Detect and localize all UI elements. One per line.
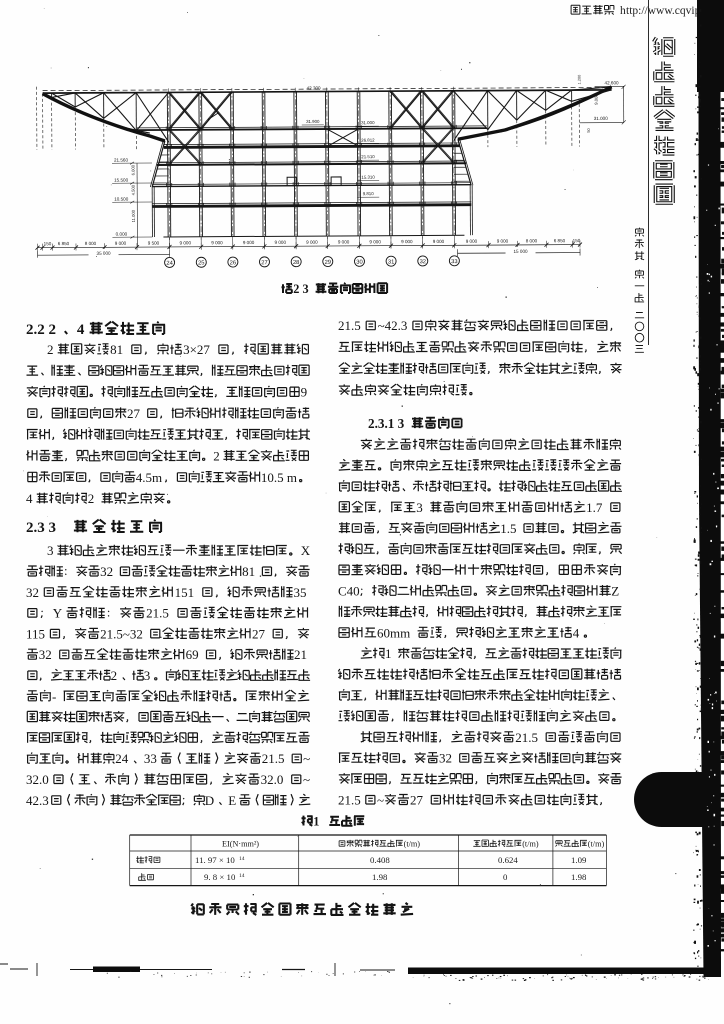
svg-text:1: 1 [385,646,392,661]
svg-text:(t/m): (t/m) [588,840,605,849]
svg-text:11.000: 11.000 [131,209,136,222]
svg-text:E: E [228,793,236,808]
svg-text:6 850: 6 850 [554,238,566,243]
svg-text:2: 2 [213,449,220,464]
svg-text:50: 50 [587,128,591,132]
svg-text:21.5: 21.5 [146,606,169,621]
svg-text:27: 27 [410,793,424,808]
svg-text:27: 27 [252,626,266,641]
svg-text:26: 26 [230,260,236,266]
svg-text:4.500: 4.500 [131,184,136,195]
svg-text:31.900: 31.900 [306,119,320,124]
svg-text:2.3.1 3: 2.3.1 3 [368,416,405,431]
svg-text:-: - [52,689,56,704]
svg-text:14: 14 [239,873,245,879]
svg-text:29: 29 [325,260,331,266]
svg-text:15 000: 15 000 [513,249,528,254]
svg-text:24: 24 [166,261,173,267]
svg-text:21.5: 21.5 [515,730,538,745]
svg-text:9 000: 9 000 [369,239,381,244]
svg-text:1.5: 1.5 [500,521,516,536]
svg-text:14: 14 [239,856,245,862]
svg-text:24: 24 [115,751,129,766]
svg-text:1.09: 1.09 [571,855,587,865]
svg-text:3: 3 [47,543,54,558]
svg-text:4: 4 [573,625,580,640]
svg-text:42.600: 42.600 [605,80,620,85]
svg-text:9.000: 9.000 [594,94,599,105]
svg-text:4.5m: 4.5m [136,470,162,485]
svg-text:~42.3: ~42.3 [378,318,408,333]
svg-text:25: 25 [198,261,204,267]
svg-text:9 000: 9 000 [401,239,413,244]
svg-text:33: 33 [451,259,457,265]
svg-text:C40: C40 [338,584,360,599]
svg-text:9 000: 9 000 [466,239,478,244]
svg-text:32: 32 [39,647,52,662]
svg-text:4: 4 [26,491,33,506]
svg-text:9 000: 9 000 [497,239,509,244]
svg-text:151: 151 [175,585,195,600]
svg-text:21.5: 21.5 [338,318,361,333]
svg-text:11. 97 × 10: 11. 97 × 10 [195,855,235,865]
svg-text:3: 3 [144,668,151,683]
svg-text:42.300: 42.300 [307,86,322,91]
svg-text:9 000: 9 000 [433,239,445,244]
svg-text:D: D [205,793,214,808]
svg-text:2 3: 2 3 [293,282,308,296]
svg-text:10.500: 10.500 [114,197,129,202]
svg-text:2.3 3: 2.3 3 [26,520,56,536]
svg-text:1.200: 1.200 [578,75,582,85]
svg-text:(t/m): (t/m) [404,840,421,849]
svg-text:28: 28 [293,260,299,266]
svg-text:35 000: 35 000 [96,251,111,256]
svg-text:4: 4 [77,322,85,338]
svg-text:32: 32 [26,585,39,600]
svg-text:33: 33 [144,751,157,766]
svg-text:2.2 2: 2.2 2 [26,322,56,338]
svg-text:32.0: 32.0 [26,772,49,787]
svg-text:2: 2 [47,342,54,357]
svg-text:(t/m): (t/m) [522,840,539,849]
svg-text:26.812: 26.812 [361,138,375,143]
svg-text:9 000: 9 000 [243,240,255,245]
svg-text:21.560: 21.560 [114,158,129,163]
svg-text:27: 27 [261,260,267,266]
svg-text:2: 2 [111,668,118,683]
svg-text:0.624: 0.624 [498,855,518,865]
svg-text:32: 32 [439,751,452,766]
svg-text:9 000: 9 000 [338,239,350,244]
svg-text:42.3: 42.3 [26,793,49,808]
svg-text:150: 150 [573,238,581,243]
svg-text:69: 69 [186,647,199,662]
svg-text:27: 27 [127,406,141,421]
svg-text:35: 35 [294,585,307,600]
svg-text:31.000: 31.000 [361,120,375,125]
svg-text:~: ~ [303,751,310,766]
svg-text:1: 1 [313,814,319,828]
svg-text:X: X [301,543,311,558]
svg-text:32: 32 [420,259,426,265]
svg-text:21.510: 21.510 [361,154,375,159]
svg-text:31: 31 [388,259,394,265]
svg-text:31.000: 31.000 [594,116,609,121]
svg-text:21.5: 21.5 [262,751,285,766]
svg-text:21.5: 21.5 [338,793,361,808]
svg-text:3×27: 3×27 [183,342,210,357]
svg-text:~: ~ [303,772,310,787]
svg-text:EI(N·mm²): EI(N·mm²) [222,840,259,849]
svg-text:3: 3 [416,500,423,515]
svg-text:1.98: 1.98 [372,872,388,882]
svg-text:115: 115 [26,626,45,641]
svg-text:9 000: 9 000 [180,240,192,245]
svg-text:2: 2 [88,491,95,506]
svg-text:30: 30 [356,260,362,266]
svg-text:9: 9 [301,385,308,400]
svg-text:81: 81 [242,564,255,579]
svg-text:81: 81 [110,342,123,357]
svg-text:9 500: 9 500 [148,241,160,246]
svg-text:9.810: 9.810 [363,191,375,196]
svg-text:9 000: 9 000 [306,240,318,245]
svg-text:32: 32 [100,564,113,579]
svg-text:21.5~32: 21.5~32 [100,626,143,641]
svg-text:15.310: 15.310 [361,175,375,180]
svg-text:0.408: 0.408 [370,855,390,865]
svg-text:60mm: 60mm [377,625,410,640]
svg-text:1.7: 1.7 [586,500,603,515]
svg-text:10.5 m: 10.5 m [261,470,297,485]
svg-text:0: 0 [503,872,508,882]
svg-text:1.98: 1.98 [571,872,587,882]
svg-text:15.500: 15.500 [114,178,129,183]
svg-text:9 000: 9 000 [275,240,287,245]
svg-text:9 000: 9 000 [211,240,223,245]
svg-text:9. 8 × 10: 9. 8 × 10 [204,872,236,882]
svg-text:Y: Y [53,606,63,621]
svg-text:Z: Z [611,584,619,599]
svg-text:~: ~ [377,793,384,808]
svg-text:6 850: 6 850 [58,241,70,246]
svg-text:21: 21 [294,647,307,662]
svg-text:150: 150 [44,241,52,246]
svg-text:32.0: 32.0 [261,772,284,787]
svg-text:8 000: 8 000 [85,241,97,246]
svg-text:6.000: 6.000 [131,164,136,175]
svg-text:0.000: 0.000 [116,232,128,237]
svg-text:8 000: 8 000 [526,238,538,243]
svg-text:9 000: 9 000 [115,241,127,246]
